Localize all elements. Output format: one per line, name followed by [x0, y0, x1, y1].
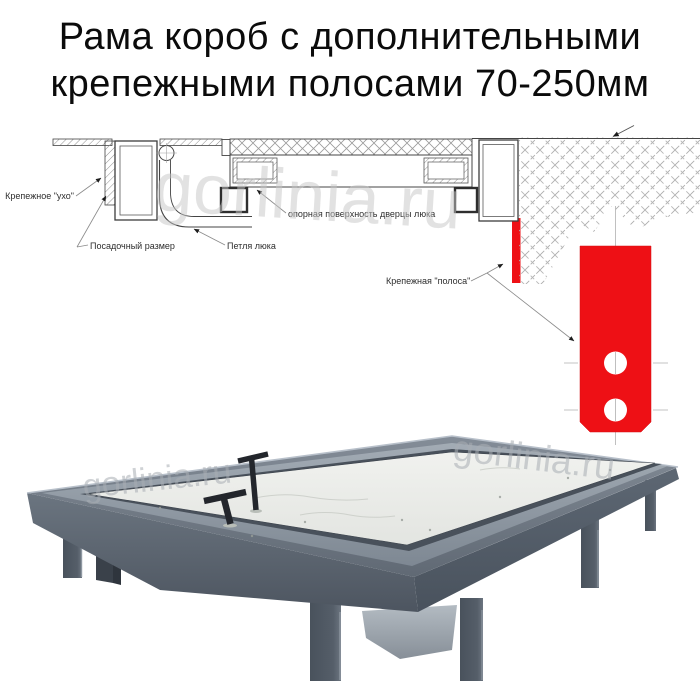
right-frame-cut — [479, 140, 518, 221]
label-hinge: Петля люка — [227, 241, 276, 251]
product-photo: gorlinia.ru gorlinia.ru — [0, 428, 700, 700]
frame-corner-hollow — [362, 605, 457, 659]
page-title: Рама короб с дополнительными крепежными … — [0, 14, 700, 108]
title-line2: крепежными полосами 70-250мм — [0, 61, 700, 108]
label-ear: Крепежное "ухо" — [5, 191, 74, 201]
technical-drawing: Крепежное "ухо" Посадочный размер Петля … — [0, 125, 700, 455]
label-strip: Крепежная "полоса" — [386, 276, 470, 286]
label-seat-size: Посадочный размер — [90, 241, 175, 251]
title-line1: Рама короб с дополнительными — [0, 14, 700, 61]
fastening-plate-red — [580, 246, 651, 432]
